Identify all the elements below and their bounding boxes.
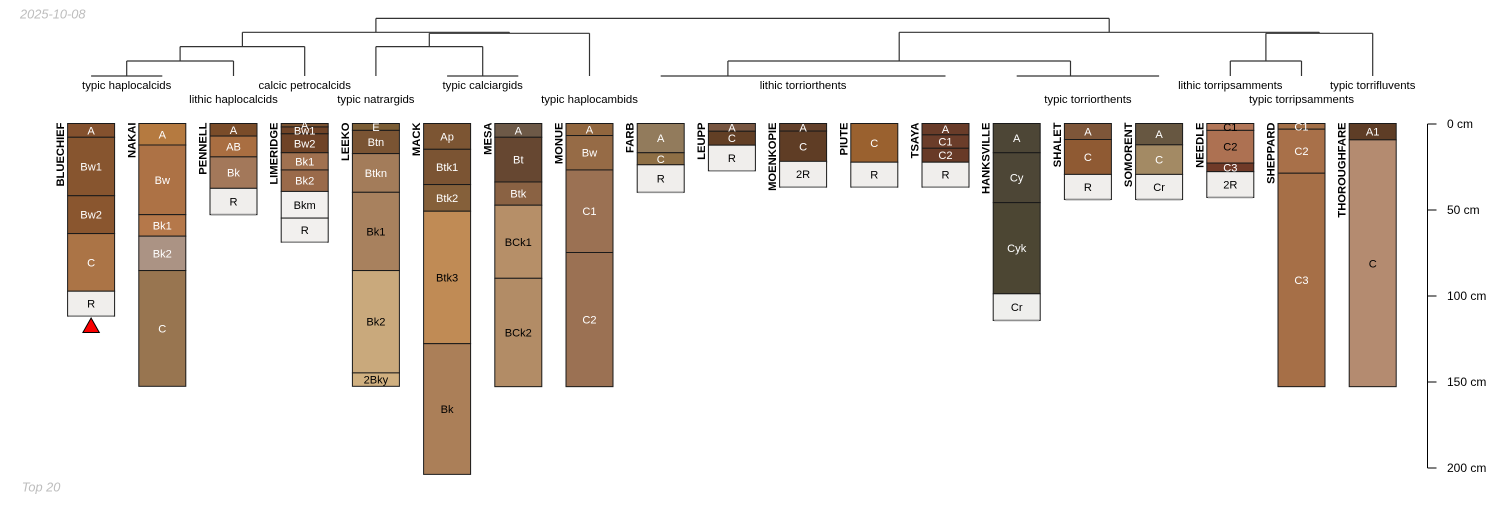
svg-text:Btk1: Btk1 bbox=[436, 162, 458, 174]
svg-text:C: C bbox=[728, 133, 736, 145]
svg-text:Bk1: Bk1 bbox=[366, 226, 385, 238]
svg-text:lithic torriorthents: lithic torriorthents bbox=[760, 80, 847, 92]
svg-text:typic torrifluvents: typic torrifluvents bbox=[1330, 80, 1416, 92]
svg-text:THOROUGHFARE: THOROUGHFARE bbox=[1337, 122, 1349, 218]
svg-text:Top 20: Top 20 bbox=[22, 480, 62, 495]
svg-text:C1: C1 bbox=[1294, 121, 1308, 133]
svg-text:A: A bbox=[515, 125, 523, 137]
svg-text:Bkm: Bkm bbox=[294, 200, 316, 212]
svg-text:100 cm: 100 cm bbox=[1447, 289, 1486, 303]
svg-text:Btk3: Btk3 bbox=[436, 272, 458, 284]
svg-text:Bt: Bt bbox=[513, 155, 523, 167]
svg-text:C1: C1 bbox=[582, 206, 596, 218]
svg-text:C: C bbox=[799, 142, 807, 154]
svg-text:Bw2: Bw2 bbox=[80, 210, 102, 222]
svg-text:Cyk: Cyk bbox=[1007, 243, 1027, 255]
svg-text:typic natrargids: typic natrargids bbox=[337, 94, 415, 106]
svg-text:MONUE: MONUE bbox=[554, 122, 566, 164]
svg-text:Bw1: Bw1 bbox=[80, 162, 102, 174]
svg-text:C: C bbox=[158, 323, 166, 335]
svg-text:BCk1: BCk1 bbox=[505, 237, 532, 249]
svg-text:C3: C3 bbox=[1223, 162, 1237, 174]
svg-text:Bw1: Bw1 bbox=[294, 125, 316, 137]
svg-text:Btk: Btk bbox=[510, 189, 526, 201]
svg-text:Bk: Bk bbox=[441, 404, 454, 416]
svg-text:2R: 2R bbox=[796, 169, 810, 181]
svg-text:SHALET: SHALET bbox=[1052, 122, 1064, 167]
svg-text:Ap: Ap bbox=[440, 131, 454, 143]
svg-text:typic calciargids: typic calciargids bbox=[442, 80, 523, 92]
svg-text:C3: C3 bbox=[1294, 275, 1308, 287]
svg-text:C: C bbox=[1155, 155, 1163, 167]
svg-text:AB: AB bbox=[226, 141, 241, 153]
svg-text:Btkn: Btkn bbox=[365, 168, 387, 180]
svg-text:C1: C1 bbox=[1223, 122, 1237, 134]
svg-text:LEUPP: LEUPP bbox=[696, 122, 708, 160]
svg-text:Btk2: Btk2 bbox=[436, 193, 458, 205]
svg-text:R: R bbox=[941, 170, 949, 182]
svg-text:2025-10-08: 2025-10-08 bbox=[19, 7, 86, 22]
svg-text:150 cm: 150 cm bbox=[1447, 375, 1486, 389]
svg-text:A: A bbox=[799, 122, 807, 134]
svg-text:lithic haplocalcids: lithic haplocalcids bbox=[189, 94, 278, 106]
svg-text:A: A bbox=[230, 125, 238, 137]
svg-text:C2: C2 bbox=[582, 315, 596, 327]
svg-text:HANKSVILLE: HANKSVILLE bbox=[981, 122, 993, 194]
svg-text:Cr: Cr bbox=[1011, 302, 1023, 314]
svg-text:NAKAI: NAKAI bbox=[126, 123, 138, 158]
svg-text:A: A bbox=[942, 124, 950, 136]
svg-text:Bk: Bk bbox=[227, 168, 240, 180]
svg-text:MESA: MESA bbox=[482, 123, 494, 155]
svg-text:C: C bbox=[870, 138, 878, 150]
svg-text:A: A bbox=[657, 133, 665, 145]
svg-text:C2: C2 bbox=[1223, 142, 1237, 154]
svg-text:Cy: Cy bbox=[1010, 173, 1024, 185]
svg-text:SHEPPARD: SHEPPARD bbox=[1266, 123, 1278, 184]
svg-text:PIUTE: PIUTE bbox=[838, 122, 850, 155]
svg-text:LEEKO: LEEKO bbox=[340, 122, 352, 161]
svg-text:Cr: Cr bbox=[1153, 182, 1165, 194]
svg-text:Bk2: Bk2 bbox=[153, 248, 172, 260]
svg-text:calcic petrocalcids: calcic petrocalcids bbox=[258, 80, 351, 92]
svg-text:Bk2: Bk2 bbox=[295, 176, 314, 188]
svg-text:0 cm: 0 cm bbox=[1447, 117, 1473, 131]
svg-text:Bw2: Bw2 bbox=[294, 138, 316, 150]
svg-text:Bk1: Bk1 bbox=[153, 220, 172, 232]
svg-text:typic haplocalcids: typic haplocalcids bbox=[82, 80, 172, 92]
svg-text:PENNELL: PENNELL bbox=[198, 122, 210, 174]
svg-text:A: A bbox=[1013, 133, 1021, 145]
svg-text:TSAYA: TSAYA bbox=[910, 123, 922, 159]
svg-text:A: A bbox=[1084, 127, 1092, 139]
svg-text:typic torriorthents: typic torriorthents bbox=[1044, 94, 1132, 106]
svg-text:BCk2: BCk2 bbox=[505, 327, 532, 339]
svg-text:MOENKOPIE: MOENKOPIE bbox=[767, 122, 779, 191]
svg-text:A: A bbox=[1155, 129, 1163, 141]
svg-text:C2: C2 bbox=[1294, 146, 1308, 158]
svg-text:A: A bbox=[159, 129, 167, 141]
svg-text:typic haplocambids: typic haplocambids bbox=[541, 94, 638, 106]
svg-text:C2: C2 bbox=[938, 150, 952, 162]
svg-text:R: R bbox=[870, 170, 878, 182]
svg-text:lithic torripsamments: lithic torripsamments bbox=[1178, 80, 1283, 92]
svg-text:R: R bbox=[87, 299, 95, 311]
svg-text:C: C bbox=[657, 154, 665, 166]
svg-text:A: A bbox=[87, 125, 95, 137]
svg-text:C1: C1 bbox=[938, 137, 952, 149]
svg-text:R: R bbox=[301, 225, 309, 237]
svg-text:Bk2: Bk2 bbox=[366, 317, 385, 329]
svg-text:LIMERIDGE: LIMERIDGE bbox=[269, 122, 281, 185]
svg-text:E: E bbox=[372, 122, 379, 134]
svg-text:50 cm: 50 cm bbox=[1447, 203, 1480, 217]
svg-text:NEEDLE: NEEDLE bbox=[1194, 122, 1206, 168]
svg-text:C: C bbox=[1369, 258, 1377, 270]
svg-text:R: R bbox=[728, 153, 736, 165]
svg-text:Bk1: Bk1 bbox=[295, 156, 314, 168]
svg-text:C: C bbox=[1084, 152, 1092, 164]
svg-text:R: R bbox=[1084, 182, 1092, 194]
svg-text:Btn: Btn bbox=[368, 137, 385, 149]
svg-text:200 cm: 200 cm bbox=[1447, 461, 1486, 475]
svg-text:R: R bbox=[229, 197, 237, 209]
svg-text:R: R bbox=[657, 174, 665, 186]
svg-text:A: A bbox=[586, 125, 594, 137]
svg-text:SOMORENT: SOMORENT bbox=[1123, 122, 1135, 187]
svg-text:C: C bbox=[87, 257, 95, 269]
svg-text:Bw: Bw bbox=[155, 175, 171, 187]
svg-text:FARB: FARB bbox=[625, 123, 637, 153]
svg-text:A1: A1 bbox=[1366, 127, 1380, 139]
svg-text:BLUECHIEF: BLUECHIEF bbox=[55, 122, 67, 186]
svg-text:Bw: Bw bbox=[582, 148, 598, 160]
svg-text:2R: 2R bbox=[1223, 180, 1237, 192]
svg-text:typic torripsamments: typic torripsamments bbox=[1249, 94, 1354, 106]
svg-text:2Bky: 2Bky bbox=[364, 375, 389, 387]
svg-text:MACK: MACK bbox=[411, 123, 423, 157]
